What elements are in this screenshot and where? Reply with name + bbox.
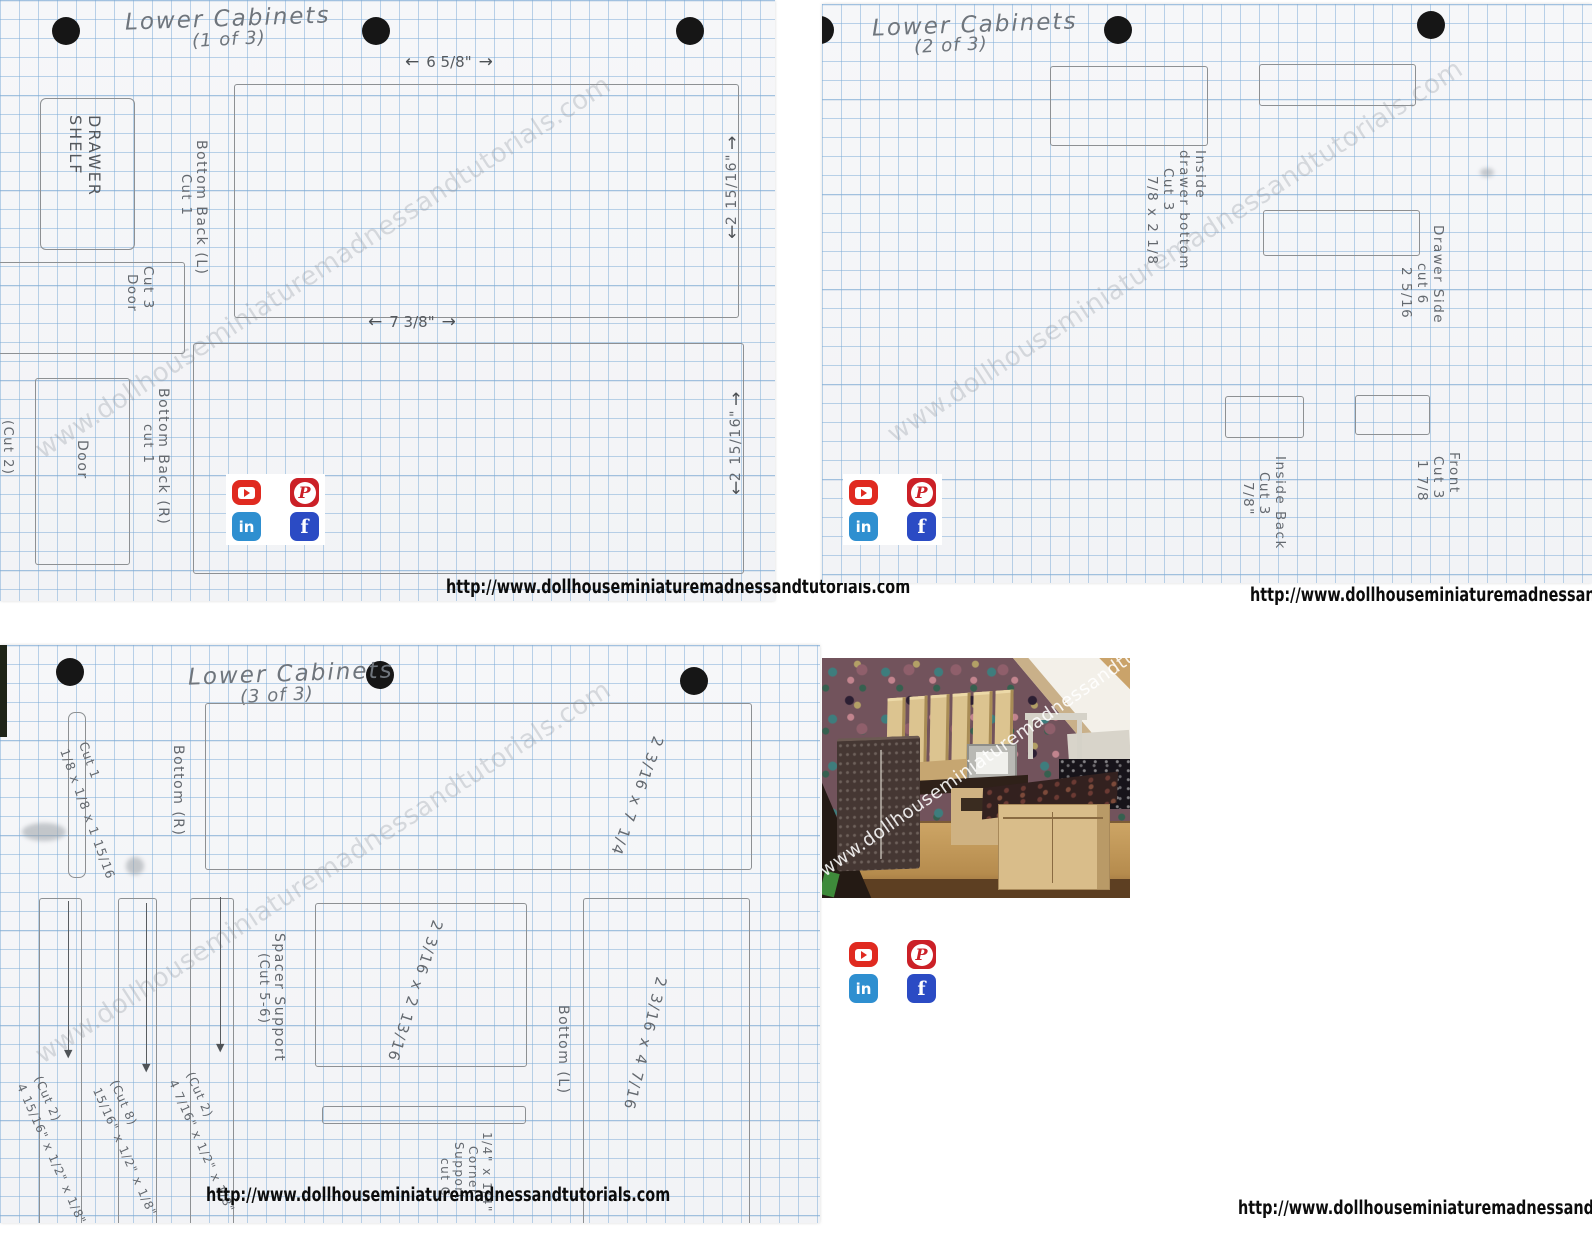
dimension-6-5-8: ← 6 5/8" →: [405, 52, 493, 72]
label-bottom-back-r: Bottom Back (R) cut 1: [140, 388, 171, 563]
sheet-3-of-3: www.dollhouseminiaturemadnessandtutorial…: [0, 645, 820, 1223]
punch-hole: [676, 17, 704, 45]
label-bottom-l: Bottom (L): [555, 1005, 571, 1095]
play-icon: [861, 489, 867, 497]
cut-outline-front: [1355, 395, 1430, 435]
arrow-down-icon: ↓: [725, 225, 739, 242]
pencil-smudge: [22, 823, 66, 841]
social-links: P in f: [843, 936, 942, 1007]
label-inside-back: Inside Back Cut 3 7/8": [1240, 456, 1288, 576]
arrow-down-icon: ↓: [729, 481, 743, 498]
punch-hole: [680, 667, 708, 695]
facebook-icon[interactable]: f: [907, 512, 936, 541]
arrow-down-icon: ▼: [64, 901, 72, 1058]
arrow-up-icon: ↑: [725, 136, 739, 153]
label-corner-support: 1/4" x 1/4" Corner Support cut C: [438, 1132, 494, 1222]
arrow-down-icon: ▼: [142, 903, 150, 1072]
label-spacer-support: Spacer Support (Cut 5-6): [256, 933, 287, 1093]
punch-hole: [56, 658, 84, 686]
cut-outline-bottom-back-l: [234, 84, 739, 318]
youtube-icon[interactable]: [232, 480, 261, 505]
social-links: P in f: [843, 474, 942, 545]
sheet2-subtitle: (2 of 3): [914, 33, 989, 58]
arrow-left-icon: ←: [368, 312, 382, 332]
cut-outline-inside-drawer-bottom: [1050, 66, 1208, 146]
sheet-2-of-3: www.dollhouseminiaturemadnessandtutorial…: [822, 4, 1592, 583]
label-cut2: (Cut 2): [0, 420, 15, 475]
kitchen-island: [998, 804, 1111, 890]
punch-hole: [52, 17, 80, 45]
dimension-7-3-8: ← 7 3/8" →: [368, 312, 456, 332]
site-url[interactable]: http://www.dollhouseminiaturemadnessandt…: [1250, 585, 1592, 606]
arrow-right-icon: →: [479, 52, 493, 72]
cut-outline-inside-back: [1225, 396, 1304, 438]
pencil-smudge: [1480, 168, 1494, 177]
sheet-1-of-3: www.dollhouseminiaturemadnessandtutorial…: [0, 0, 775, 601]
cut-outline-bottom-r: [205, 703, 752, 870]
linkedin-icon[interactable]: in: [849, 974, 878, 1003]
youtube-icon[interactable]: [849, 480, 878, 505]
dimension-2-15-16-bottom: ↑ 2 15/16" ↓: [728, 392, 744, 524]
pinterest-icon[interactable]: P: [290, 478, 319, 507]
linkedin-icon[interactable]: in: [849, 512, 878, 541]
facebook-icon[interactable]: f: [907, 974, 936, 1003]
cut-outline-bottom-l: [583, 898, 750, 1223]
site-url[interactable]: http://www.dollhouseminiaturemadnessandt…: [206, 1185, 670, 1206]
youtube-icon[interactable]: [849, 942, 878, 967]
cut-outline-corner-support: [322, 1106, 526, 1124]
cut-outline-drawer-side-2: [1263, 210, 1420, 256]
punch-hole: [362, 17, 390, 45]
pinterest-icon[interactable]: P: [907, 478, 936, 507]
arrow-right-icon: →: [442, 312, 456, 332]
sheet1-subtitle: (1 of 3): [192, 27, 267, 52]
arrow-up-icon: ↑: [729, 392, 743, 409]
punch-hole: [1417, 11, 1445, 39]
facebook-icon[interactable]: f: [290, 512, 319, 541]
linkedin-icon[interactable]: in: [232, 512, 261, 541]
label-bottom-r: Bottom (R): [170, 745, 186, 836]
cut-outline-door-small: [0, 262, 185, 354]
punch-hole: [822, 16, 834, 44]
dimension-2-15-16-top: ↑ 2 15/16" ↓: [724, 136, 740, 268]
label-front: Front Cut 3 1 7/8: [1414, 452, 1462, 562]
play-icon: [244, 489, 250, 497]
scan-collage: www.dollhouseminiaturemadnessandtutorial…: [0, 0, 1592, 1247]
punch-hole: [1104, 16, 1132, 44]
play-icon: [861, 951, 867, 959]
site-url[interactable]: http://www.dollhouseminiaturemadnessandt…: [1238, 1198, 1592, 1219]
social-links: P in f: [226, 474, 325, 545]
label-drawer-side: Drawer Side cut 6 2 5/16: [1398, 225, 1446, 365]
label-inside-drawer-bottom: Inside drawer bottom Cut 3 7/8 x 2 1/8: [1144, 150, 1208, 310]
label-drawer-shelf: DRAWER SHELF: [66, 115, 104, 235]
label-cut3-door: Cut 3 Door: [124, 266, 156, 350]
arrow-down-icon: ▼: [216, 897, 224, 1052]
scan-edge-artifact: [0, 645, 7, 737]
cut-outline-drawer-side-1: [1259, 64, 1416, 106]
kitchen-photo: www.dollhouseminiaturemadnessandtutorial…: [822, 658, 1130, 898]
pinterest-icon[interactable]: P: [907, 940, 936, 969]
arrow-left-icon: ←: [405, 52, 419, 72]
label-door: Door: [74, 440, 90, 480]
